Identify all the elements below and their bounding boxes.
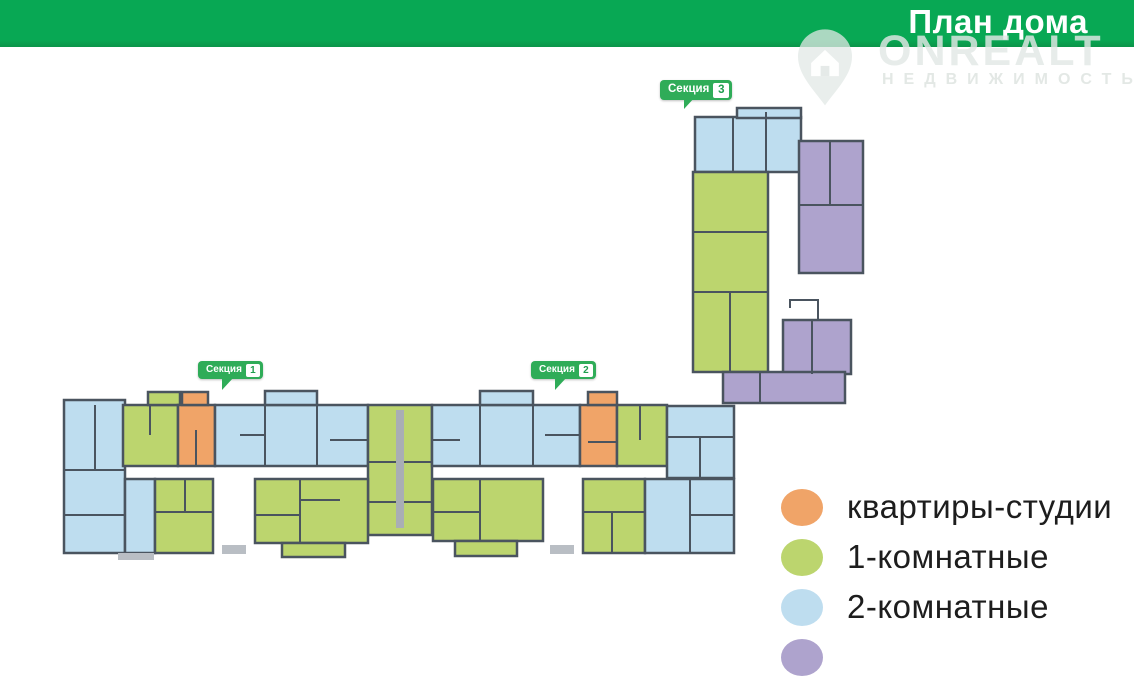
floor-plan-page: { "header": { "title": "План дома", "bg_…: [0, 0, 1134, 648]
flag-tail-icon: [555, 377, 567, 390]
legend: квартиры-студии1-комнатные2-комнатные: [781, 482, 1112, 682]
apartment-unit-room3[interactable]: [783, 320, 851, 374]
section-flag-1: Секция1: [198, 361, 263, 379]
apartment-unit-room1[interactable]: [433, 479, 543, 541]
legend-swatch: [781, 539, 823, 576]
apartment-unit-room2[interactable]: [265, 391, 317, 405]
section-flag-2: Секция2: [531, 361, 596, 379]
legend-item: 1-комнатные: [781, 532, 1112, 582]
section-flag-label: Секция: [206, 365, 242, 375]
legend-label: 2-комнатные: [847, 588, 1049, 626]
legend-swatch: [781, 589, 823, 626]
apartment-unit-studio[interactable]: [182, 392, 208, 405]
legend-item: [781, 632, 1112, 682]
flag-tail-icon: [222, 377, 234, 390]
apartment-unit-studio[interactable]: [588, 392, 617, 405]
flag-tail-icon: [684, 96, 696, 109]
apartment-unit-room1[interactable]: [282, 543, 345, 557]
section-flag-number: 3: [713, 83, 729, 98]
section-flag-number: 1: [246, 364, 260, 377]
apartment-unit-room1[interactable]: [148, 392, 180, 405]
legend-label: квартиры-студии: [847, 488, 1112, 526]
section-flag-3: Секция3: [660, 80, 732, 100]
header-bar: План дома: [0, 0, 1134, 47]
apartment-unit-studio[interactable]: [580, 405, 617, 466]
apartment-unit-room1[interactable]: [255, 479, 368, 543]
legend-label: 1-комнатные: [847, 538, 1049, 576]
apartment-unit-room2[interactable]: [695, 117, 801, 172]
apartment-units-layer: [64, 108, 863, 557]
section-flag-number: 2: [579, 364, 593, 377]
legend-item: квартиры-студии: [781, 482, 1112, 532]
legend-item: 2-комнатные: [781, 582, 1112, 632]
apartment-unit-room1[interactable]: [455, 541, 517, 556]
section-flag-label: Секция: [668, 84, 709, 96]
section-flag-label: Секция: [539, 365, 575, 375]
apartment-unit-room3[interactable]: [723, 372, 845, 403]
apartment-unit-room2[interactable]: [125, 479, 155, 553]
apartment-unit-room1[interactable]: [617, 405, 667, 466]
apartment-unit-room1[interactable]: [583, 479, 645, 553]
apartment-unit-room2[interactable]: [737, 108, 801, 118]
legend-swatch: [781, 639, 823, 676]
page-title: План дома: [908, 3, 1088, 41]
legend-swatch: [781, 489, 823, 526]
apartment-unit-room2[interactable]: [480, 391, 533, 405]
apartment-unit-room2[interactable]: [215, 405, 368, 466]
